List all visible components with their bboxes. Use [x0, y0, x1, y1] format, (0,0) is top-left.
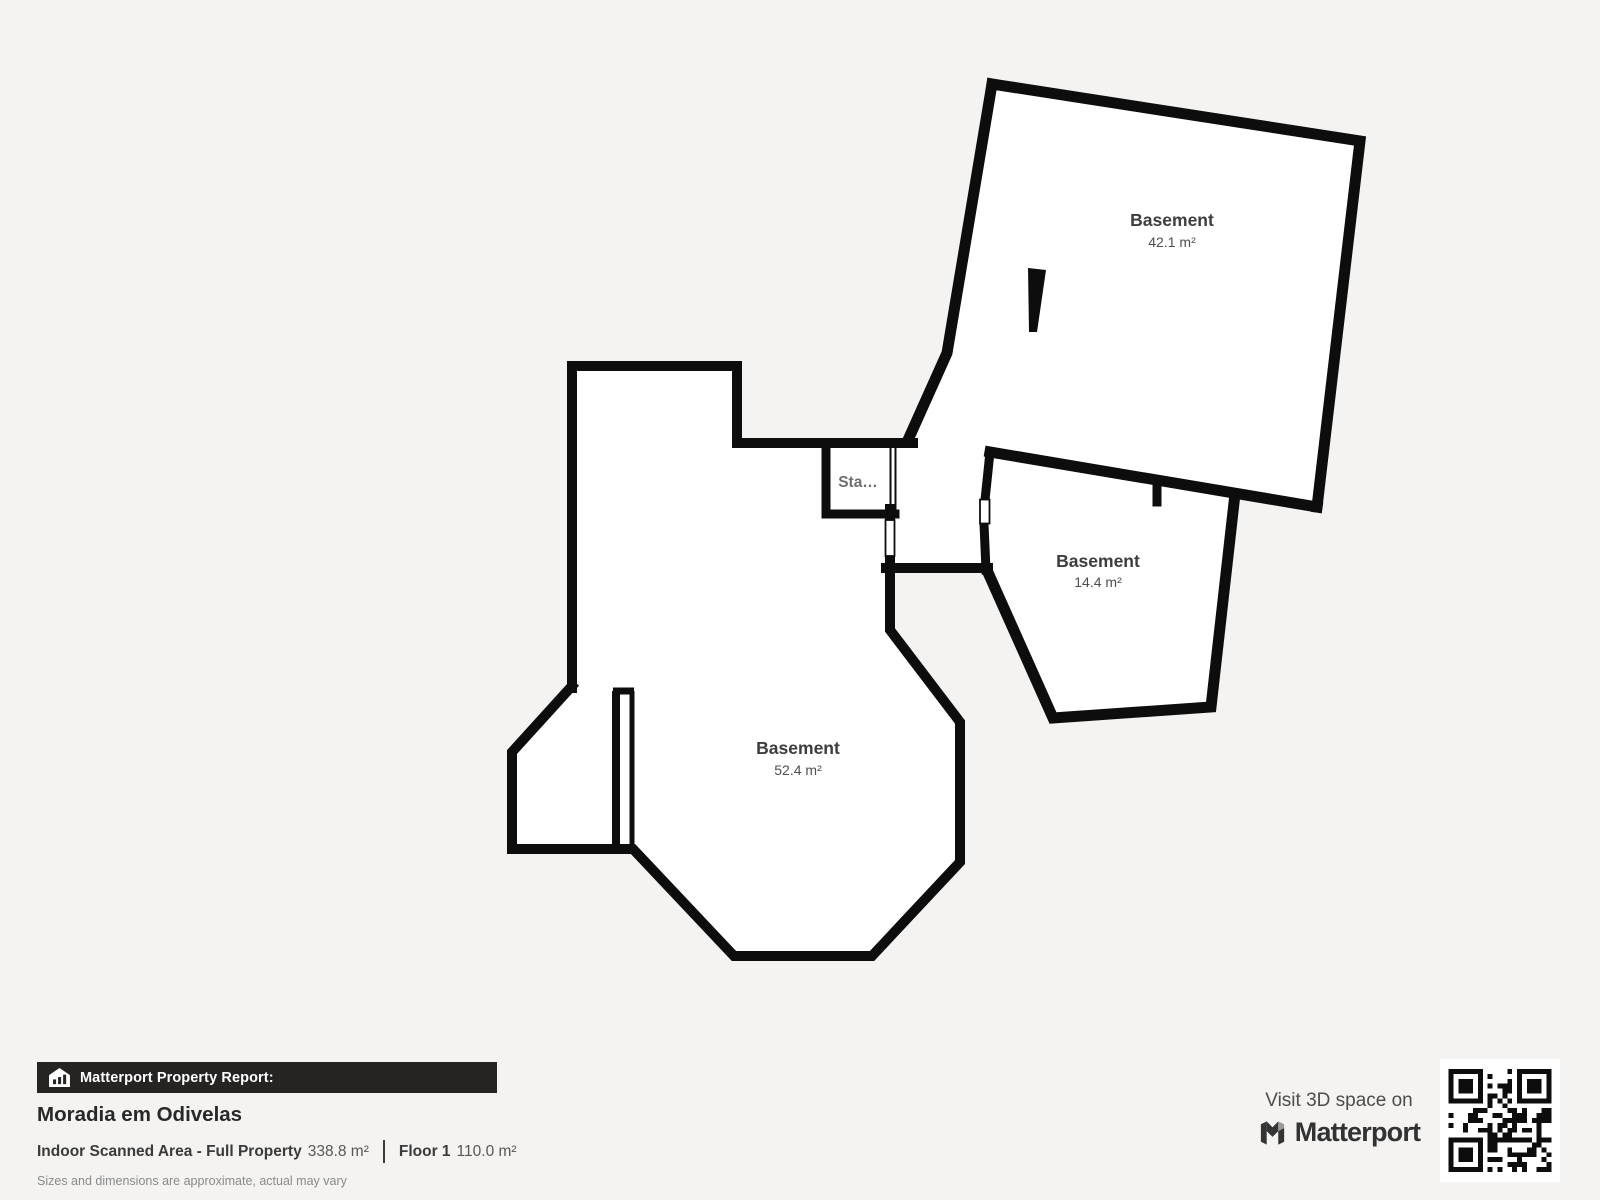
property-name: Moradia em Odivelas — [37, 1103, 637, 1127]
room-basement-42-area: 42.1 m² — [1148, 234, 1196, 250]
floor-value: 110.0 m² — [457, 1143, 517, 1161]
report-bar-title: Matterport Property Report: — [80, 1070, 274, 1086]
opening-basement14-door — [980, 500, 990, 524]
room-basement-52-name: Basement — [756, 738, 840, 758]
qr-code — [1440, 1059, 1560, 1182]
room-basement-14-area: 14.4 m² — [1074, 574, 1122, 590]
matterport-house-icon — [49, 1068, 70, 1087]
opening-below-stairs — [886, 520, 895, 556]
area-stats-row: Indoor Scanned Area - Full Property 338.… — [37, 1140, 637, 1163]
room-basement-42-name: Basement — [1130, 210, 1214, 230]
report-header-bar: Matterport Property Report: — [37, 1062, 497, 1093]
floor-plan-svg: Basement 42.1 m² Basement 14.4 m² Baseme… — [0, 0, 1600, 1200]
stats-divider — [383, 1140, 385, 1163]
matterport-floor-plan-report: Basement 42.1 m² Basement 14.4 m² Baseme… — [0, 0, 1600, 1200]
scanned-area-label: Indoor Scanned Area - Full Property — [37, 1143, 302, 1161]
visit-3d-text: Visit 3D space on — [1244, 1090, 1434, 1112]
report-footer: Matterport Property Report: Moradia em O… — [37, 1062, 637, 1188]
room-basement-52-area: 52.4 m² — [774, 762, 822, 778]
room-basement-14-name: Basement — [1056, 551, 1140, 571]
wall-basement14-left-upper — [985, 452, 990, 500]
brand-row: Matterport — [1244, 1117, 1434, 1148]
floor-label: Floor 1 — [399, 1143, 451, 1161]
qr-code-svg — [1440, 1059, 1560, 1182]
stairs-label: Sta… — [838, 474, 878, 491]
scanned-area-value: 338.8 m² — [308, 1143, 369, 1161]
disclaimer-text: Sizes and dimensions are approximate, ac… — [37, 1174, 637, 1188]
matterport-logo-icon — [1258, 1119, 1287, 1147]
matterport-wordmark: Matterport — [1295, 1117, 1421, 1148]
matterport-badge: Visit 3D space on Matterport — [1244, 1090, 1434, 1148]
